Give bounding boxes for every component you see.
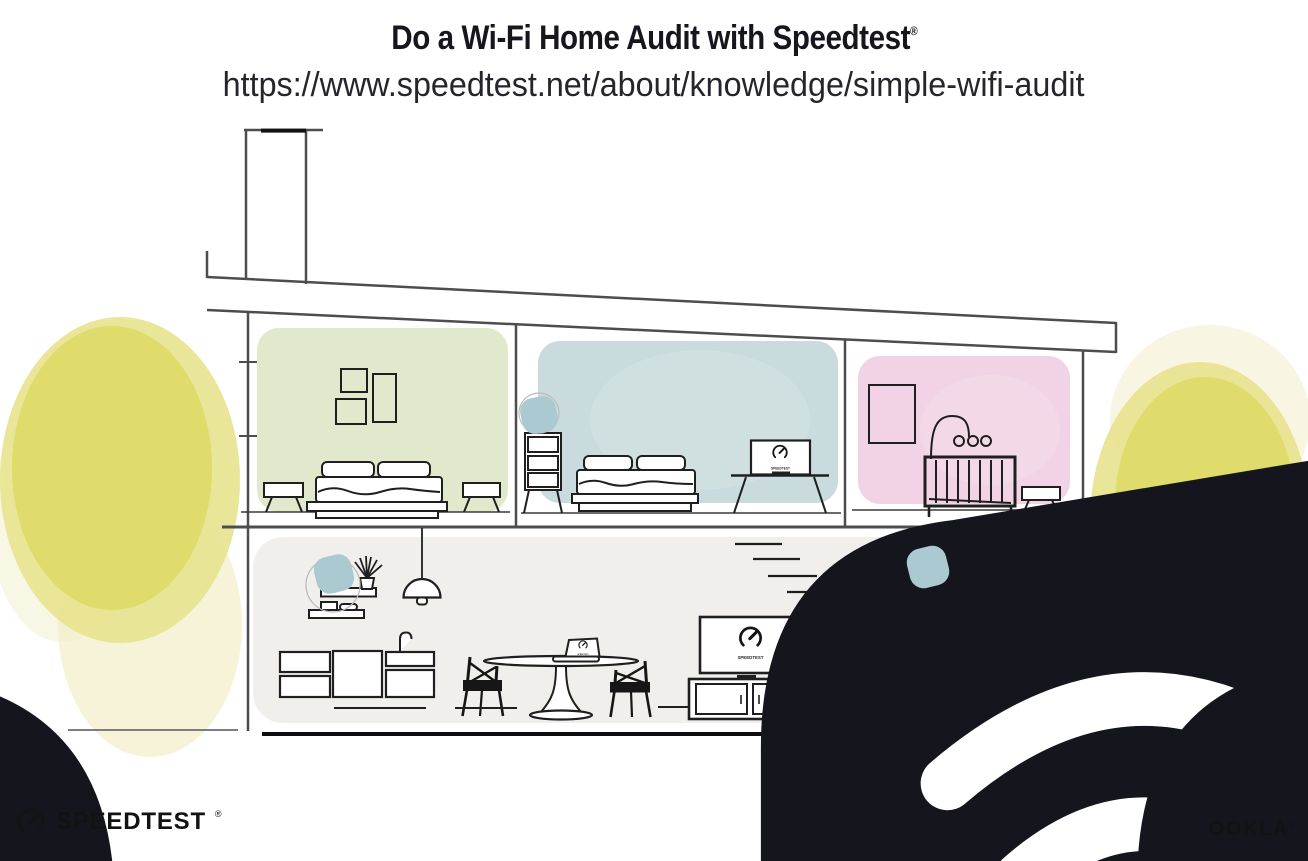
bowl	[321, 602, 337, 610]
speedtest-logo: SPEEDTEST®	[15, 806, 222, 838]
speedtest-gauge-logo-icon	[15, 806, 47, 838]
infographic-canvas: Do a Wi-Fi Home Audit with Speedtest® ht…	[0, 0, 1308, 861]
chimney	[244, 130, 323, 284]
bed	[307, 462, 447, 518]
ookla-registered-mark: ®	[1289, 820, 1295, 829]
foliage-left	[0, 317, 242, 757]
bedroom-tv-label: SPEEDTEST	[771, 467, 790, 471]
speedtest-registered-mark: ®	[215, 809, 222, 819]
speedtest-wordmark: SPEEDTEST	[56, 808, 206, 836]
plant-pot	[360, 578, 374, 589]
house-cross-section-illustration: SPEEDTEST	[0, 0, 1308, 861]
living-tv-label: SPEEDTEST	[737, 655, 763, 660]
ookla-wordmark: OOKLA	[1209, 818, 1289, 840]
ookla-logo: OOKLA®	[1209, 818, 1295, 841]
